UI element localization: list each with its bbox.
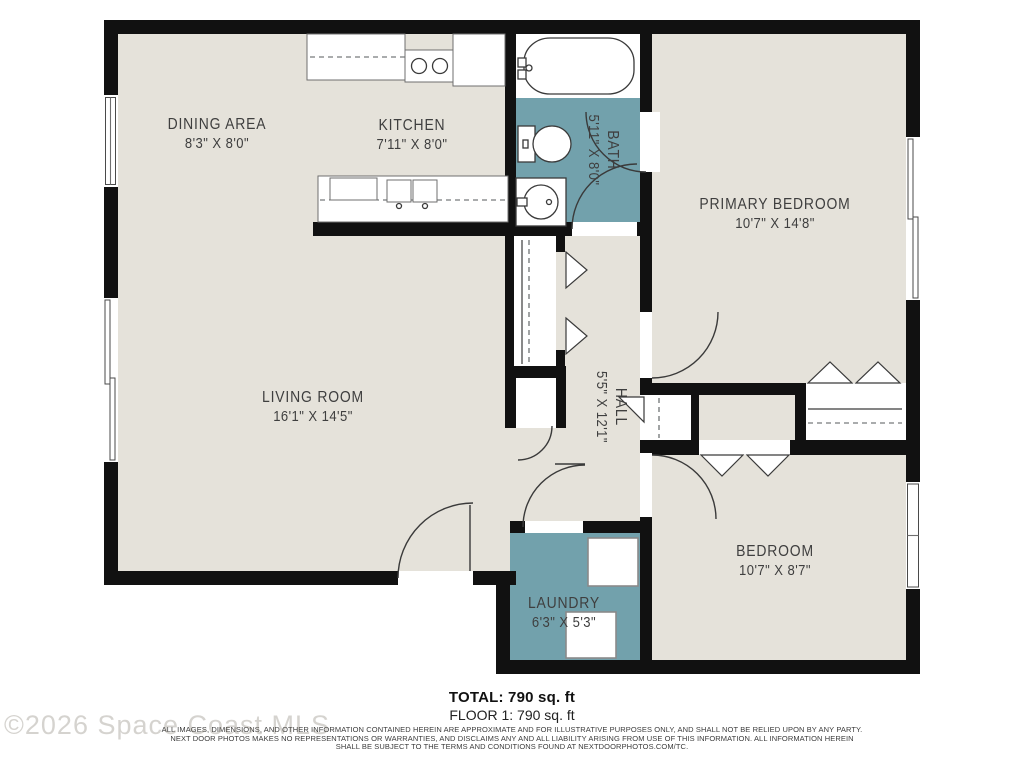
stove <box>405 50 453 82</box>
disclaimer-line: SHALL BE SUBJECT TO THE TERMS AND CONDIT… <box>0 743 1024 752</box>
total-area-text: TOTAL: 790 sq. ft <box>0 689 1024 706</box>
room-label-living-room: LIVING ROOM 16'1" X 14'5" <box>262 389 364 425</box>
room-dims: 7'11" X 8'0" <box>377 137 448 153</box>
room-dims: 10'7" X 14'8" <box>699 216 850 232</box>
room-label-laundry: LAUNDRY 6'3" X 5'3" <box>528 595 600 631</box>
bathtub <box>518 38 634 94</box>
room-name: KITCHEN <box>377 117 448 135</box>
room-name: DINING AREA <box>168 116 267 134</box>
room-dims: 5'5" X 12'1" <box>593 371 609 443</box>
room-name: BATH <box>603 115 621 186</box>
dishwasher <box>330 178 377 200</box>
room-label-bedroom: BEDROOM 10'7" X 8'7" <box>736 543 814 579</box>
room-label-hall: HALL 5'5" X 12'1" <box>593 371 629 443</box>
floor-plan-page: DINING AREA 8'3" X 8'0" KITCHEN 7'11" X … <box>0 0 1024 768</box>
room-label-dining: DINING AREA 8'3" X 8'0" <box>168 116 267 152</box>
room-label-kitchen: KITCHEN 7'11" X 8'0" <box>377 117 448 153</box>
room-name: LIVING ROOM <box>262 389 364 407</box>
room-label-bath: BATH 5'11" X 8'0" <box>585 115 621 186</box>
room-dims: 5'11" X 8'0" <box>585 115 601 186</box>
toilet <box>518 126 571 162</box>
bathroom-sink <box>516 178 566 226</box>
dining-window <box>106 98 116 185</box>
room-label-primary-bedroom: PRIMARY BEDROOM 10'7" X 14'8" <box>699 196 850 232</box>
refrigerator <box>453 34 505 86</box>
room-name: PRIMARY BEDROOM <box>699 196 850 214</box>
room-dims: 10'7" X 8'7" <box>736 563 814 579</box>
room-dims: 6'3" X 5'3" <box>528 615 600 631</box>
bedroom-window <box>908 484 919 587</box>
room-name: HALL <box>611 371 629 443</box>
room-name: LAUNDRY <box>528 595 600 613</box>
room-name: BEDROOM <box>736 543 814 561</box>
mls-watermark: ©2026 Space Coast MLS <box>4 710 330 741</box>
room-dims: 8'3" X 8'0" <box>168 136 267 152</box>
room-dims: 16'1" X 14'5" <box>262 409 364 425</box>
floor-plan-svg <box>0 0 1024 768</box>
